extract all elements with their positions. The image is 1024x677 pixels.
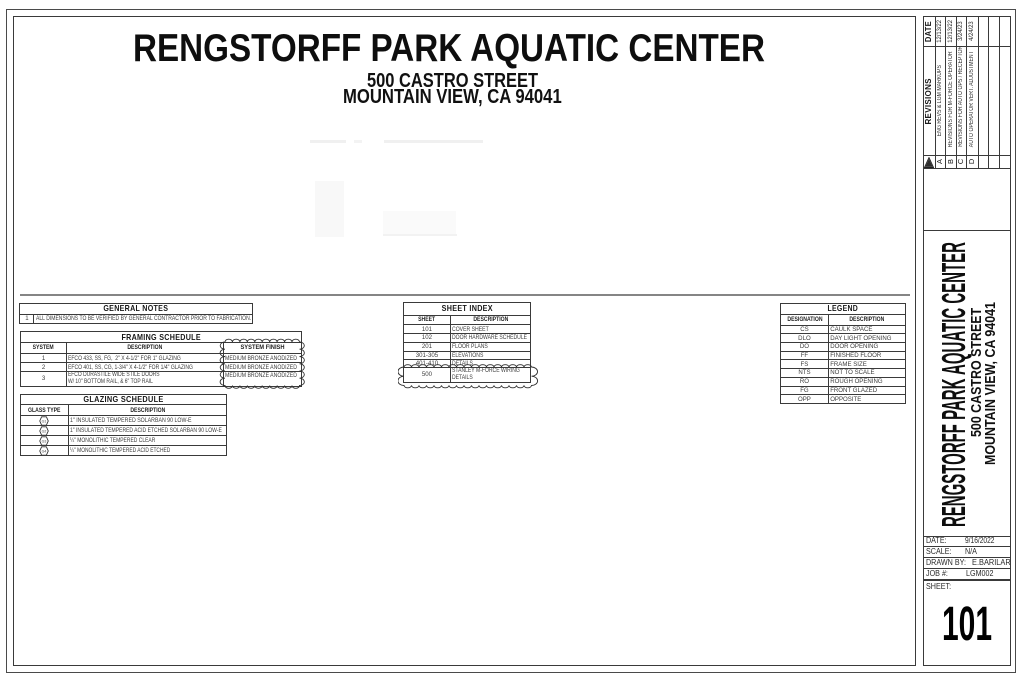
svg-text:G1: G1	[42, 419, 47, 423]
svg-text:G2: G2	[42, 429, 47, 433]
svg-text:G3: G3	[42, 439, 47, 443]
svg-text:G4: G4	[42, 449, 47, 453]
